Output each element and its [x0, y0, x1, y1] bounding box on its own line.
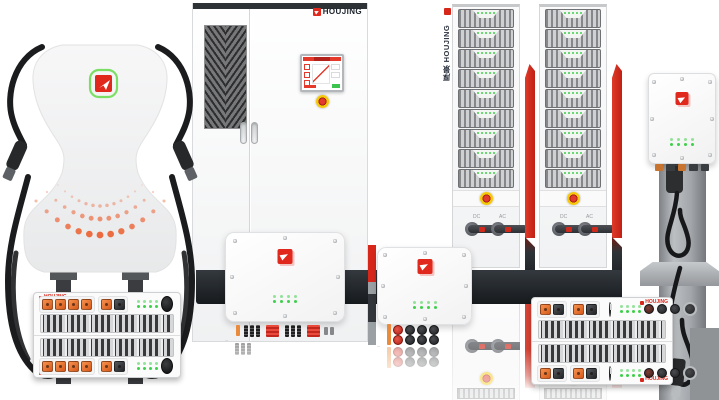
brand-logo-icon	[444, 8, 451, 15]
ledcol-item	[137, 362, 140, 371]
module-led	[477, 112, 479, 114]
screw	[383, 253, 387, 257]
bar-item	[297, 325, 301, 337]
rectifier-module	[458, 89, 514, 108]
connector-row	[39, 295, 175, 313]
module-led	[477, 52, 479, 54]
module-led	[481, 72, 483, 74]
ledcol-item	[620, 305, 623, 314]
module-led	[493, 172, 495, 174]
ledcol-item	[155, 362, 158, 371]
stripe-dark-segment	[525, 237, 535, 271]
red-accent-stripe	[525, 64, 535, 238]
module-led	[568, 172, 570, 174]
screw	[652, 80, 656, 84]
module-led	[485, 152, 487, 154]
module-led	[568, 132, 570, 134]
module-led	[568, 92, 570, 94]
connector-rows	[387, 325, 439, 344]
emergency-stop-button[interactable]	[316, 95, 329, 108]
rectifier-module	[545, 69, 601, 88]
module-notch	[558, 30, 588, 38]
sq-item	[586, 304, 597, 315]
screw	[423, 317, 427, 321]
module-tower-2: DC AC	[539, 4, 607, 268]
screw	[230, 275, 234, 279]
tower-module-stack	[458, 9, 514, 189]
rectifier-module	[545, 89, 601, 108]
screw	[680, 77, 684, 81]
estop-panel	[540, 190, 606, 207]
module-led	[580, 92, 582, 94]
power-module-pair-right: HOUJING HOUJING	[531, 297, 673, 385]
rconn-item	[644, 304, 654, 314]
rectifier-module	[545, 49, 601, 68]
module-led	[580, 12, 582, 14]
module-led	[481, 112, 483, 114]
module-led	[580, 32, 582, 34]
module-led	[572, 52, 574, 54]
module-led	[572, 172, 574, 174]
power-module-pair-left: HOUJING HOUJING	[33, 292, 181, 378]
module-led	[568, 72, 570, 74]
sq-item	[553, 368, 564, 379]
rectifier-module	[458, 169, 514, 188]
module-led	[481, 92, 483, 94]
ventilation-slats	[40, 314, 174, 333]
module-notch	[558, 170, 588, 178]
screw	[462, 315, 466, 319]
rectifier-module	[545, 169, 601, 188]
wallbox-small	[377, 247, 472, 346]
ledcol-item	[632, 305, 635, 314]
brand-logo-icon	[278, 249, 293, 264]
brand-logo-text: HOUJING	[323, 7, 362, 16]
module-led	[485, 32, 487, 34]
module-led	[564, 12, 566, 14]
rectifier-module	[545, 129, 601, 148]
module-led	[576, 112, 578, 114]
connector-row	[537, 300, 667, 318]
tower-module-stack	[545, 9, 601, 189]
rectifier-module	[458, 149, 514, 168]
ledcol-item	[691, 138, 694, 147]
module-led	[576, 132, 578, 134]
module-led	[477, 132, 479, 134]
sq-item	[81, 361, 92, 372]
module-notch	[558, 70, 588, 78]
module-led	[489, 32, 491, 34]
module-led	[481, 132, 483, 134]
module-led	[564, 132, 566, 134]
bar-item	[256, 325, 260, 337]
brand-logo-icon	[313, 8, 321, 16]
bar-item	[291, 325, 295, 337]
module-led	[493, 52, 495, 54]
module-led	[572, 92, 574, 94]
screw	[383, 315, 387, 319]
estop-panel	[453, 190, 519, 207]
rconn-item	[429, 325, 439, 335]
ledcol-item	[626, 305, 629, 314]
sq-item	[553, 304, 564, 315]
power-module: HOUJING	[532, 298, 672, 341]
rectifier-module	[545, 149, 601, 168]
module-led	[493, 92, 495, 94]
module-led	[568, 152, 570, 154]
module-led	[489, 92, 491, 94]
rconn-item	[644, 368, 654, 378]
rectifier-module	[545, 29, 601, 48]
module-led	[580, 52, 582, 54]
screw	[464, 284, 468, 288]
module-led	[493, 72, 495, 74]
module-notch	[471, 110, 501, 118]
module-notch	[471, 30, 501, 38]
module-notch	[471, 150, 501, 158]
module-led	[493, 32, 495, 34]
module-led	[576, 92, 578, 94]
module-led	[572, 152, 574, 154]
sq-item	[55, 299, 66, 310]
rotary-knob[interactable]	[609, 302, 611, 317]
module-led	[572, 112, 574, 114]
module-led	[564, 32, 566, 34]
emergency-stop-button[interactable]	[480, 192, 493, 205]
ledcol-item	[677, 138, 680, 147]
module-led	[489, 12, 491, 14]
module-led	[477, 12, 479, 14]
module-led	[485, 72, 487, 74]
module-led	[489, 152, 491, 154]
ledcol-item	[420, 301, 423, 310]
ledcol-item	[294, 295, 297, 304]
charger-bottom-connectors	[655, 164, 709, 171]
switch-handle	[494, 225, 528, 233]
module-led	[477, 152, 479, 154]
brand-logo-icon	[417, 259, 432, 274]
module-led	[493, 112, 495, 114]
module-led	[568, 52, 570, 54]
screw	[333, 311, 337, 315]
module-led	[576, 152, 578, 154]
module-led	[580, 132, 582, 134]
module-led	[481, 172, 483, 174]
module-led	[489, 112, 491, 114]
stripe-dark-segment	[612, 237, 622, 271]
switch-label: DC	[560, 215, 567, 220]
module-led	[485, 132, 487, 134]
module-notch	[471, 10, 501, 18]
module-led	[489, 72, 491, 74]
brand-logo-icon	[676, 92, 689, 105]
sq-item	[55, 361, 66, 372]
sq-item	[81, 299, 92, 310]
fins-reflection	[457, 388, 515, 399]
module-led	[572, 32, 574, 34]
ledcol-item	[155, 300, 158, 309]
module-led	[580, 72, 582, 74]
rectifier-module	[458, 129, 514, 148]
door-handle-right[interactable]	[251, 122, 258, 144]
screw	[336, 275, 340, 279]
ledcol-item	[638, 305, 641, 314]
rconn-item	[417, 325, 427, 335]
module-led	[580, 112, 582, 114]
switch-handle	[581, 225, 615, 233]
module-tower-1: DC AC	[452, 4, 520, 268]
ventilation-slats	[538, 344, 666, 363]
red-accent-stripe	[612, 64, 622, 238]
module-notch	[558, 130, 588, 138]
rconn-item	[417, 335, 427, 345]
module-led	[489, 172, 491, 174]
rconn-item	[657, 304, 667, 314]
module-led	[485, 92, 487, 94]
module-led	[485, 172, 487, 174]
module-led	[485, 112, 487, 114]
module-led	[568, 12, 570, 14]
module-led	[564, 172, 566, 174]
estop-reflection	[480, 372, 493, 385]
screw	[650, 117, 654, 121]
screw	[680, 156, 684, 160]
module-notch	[558, 10, 588, 18]
module-led	[576, 72, 578, 74]
sq-item	[573, 304, 584, 315]
module-led	[485, 52, 487, 54]
module-led	[580, 152, 582, 154]
power-module: HOUJING	[532, 341, 672, 384]
module-notch	[558, 90, 588, 98]
ledcol-item	[626, 369, 629, 378]
screw	[233, 239, 237, 243]
sq-item	[42, 361, 53, 372]
ledcol-item	[427, 301, 430, 310]
module-led	[481, 52, 483, 54]
connector-row	[39, 357, 175, 375]
module-led	[493, 152, 495, 154]
module-led	[564, 52, 566, 54]
ledcol-item	[137, 300, 140, 309]
screw	[233, 311, 237, 315]
module-notch	[558, 110, 588, 118]
rconn-item	[405, 325, 415, 335]
wallbox-faceplate	[225, 232, 345, 322]
rectifier-module	[545, 109, 601, 128]
screw	[708, 80, 712, 84]
charging-gun-left[interactable]	[0, 139, 29, 182]
switch-label: AC	[586, 215, 593, 220]
wall-charger-box	[648, 73, 716, 164]
sq-item	[540, 304, 551, 315]
module-led	[576, 172, 578, 174]
rotary-knob[interactable]	[609, 366, 611, 381]
bar-item	[250, 325, 254, 337]
module-led	[481, 32, 483, 34]
sq-item	[114, 361, 125, 372]
module-notch	[471, 90, 501, 98]
screw	[462, 253, 466, 257]
fins-reflection	[544, 388, 602, 399]
module-led	[576, 52, 578, 54]
module-led	[576, 32, 578, 34]
screw	[381, 284, 385, 288]
module-led	[477, 92, 479, 94]
bar-item	[244, 325, 248, 337]
sq-item	[586, 368, 597, 379]
rectifier-module	[458, 109, 514, 128]
sq-item	[101, 299, 112, 310]
module-led	[580, 172, 582, 174]
power-module: HOUJING	[34, 293, 180, 335]
bar-item	[285, 325, 289, 337]
ledcol-item	[143, 362, 146, 371]
status-led-grid	[670, 138, 694, 147]
module-notch	[471, 50, 501, 58]
ventilation-grille	[204, 25, 247, 129]
module-led	[564, 152, 566, 154]
module-led	[493, 12, 495, 14]
module-led	[564, 92, 566, 94]
module-led	[564, 112, 566, 114]
rconn-item	[393, 325, 403, 335]
sq-item	[540, 368, 551, 379]
brand-logo: HOUJING	[313, 7, 362, 16]
round-connector	[161, 296, 173, 312]
status-led-grid	[413, 301, 437, 310]
module-notch	[471, 70, 501, 78]
screw	[652, 153, 656, 157]
rconn-item	[657, 368, 667, 378]
ledcol-item	[143, 300, 146, 309]
module-led	[489, 52, 491, 54]
pedestal-shadow	[690, 328, 719, 400]
sq-item	[68, 361, 79, 372]
ledcol-item	[280, 295, 283, 304]
module-notch	[471, 130, 501, 138]
module-led	[568, 32, 570, 34]
power-module: HOUJING	[34, 335, 180, 377]
module-led	[477, 172, 479, 174]
screw	[423, 251, 427, 255]
rconn-item	[670, 368, 680, 378]
ventilation-slats	[40, 338, 174, 357]
wallbox-faceplate	[377, 247, 472, 325]
ledcol-item	[149, 362, 152, 371]
module-led	[564, 72, 566, 74]
touchscreen-display[interactable]	[300, 54, 344, 92]
module-led	[477, 72, 479, 74]
screw	[710, 117, 714, 121]
module-led	[485, 12, 487, 14]
module-led	[572, 132, 574, 134]
rconn-item	[429, 335, 439, 345]
module-led	[489, 132, 491, 134]
sq-item	[114, 299, 125, 310]
wallbox-inverter	[225, 232, 345, 340]
sq-item	[42, 299, 53, 310]
rectifier-module	[458, 9, 514, 28]
rconn-item	[683, 302, 697, 316]
module-notch	[558, 50, 588, 58]
screw	[283, 236, 287, 240]
background-red-stripe	[368, 245, 376, 345]
ledcol-item	[620, 369, 623, 378]
status-led-grid	[273, 295, 297, 304]
ventilation-slats	[538, 320, 666, 339]
rectifier-module	[458, 29, 514, 48]
module-led	[568, 112, 570, 114]
module-led	[576, 12, 578, 14]
connector-row	[537, 364, 667, 382]
round-connector	[161, 358, 173, 374]
rconn-item	[393, 335, 403, 345]
ledcol-item	[287, 295, 290, 304]
terminal-row	[233, 323, 337, 338]
module-led	[481, 12, 483, 14]
module-led	[477, 32, 479, 34]
module-led	[572, 72, 574, 74]
screw	[333, 239, 337, 243]
terminal-block-red	[266, 325, 279, 337]
ledcol-item	[413, 301, 416, 310]
ledcol-item	[434, 301, 437, 310]
screw	[708, 153, 712, 157]
rconn-item	[683, 366, 697, 380]
sq-item	[68, 299, 79, 310]
module-led	[572, 12, 574, 14]
sq-item	[573, 368, 584, 379]
ledcol-item	[638, 369, 641, 378]
rectifier-module	[458, 69, 514, 88]
module-notch	[471, 170, 501, 178]
ledcol-item	[273, 295, 276, 304]
screw	[283, 314, 287, 318]
module-notch	[558, 150, 588, 158]
switch-label: AC	[499, 215, 506, 220]
ledcol-item	[670, 138, 673, 147]
sq-item	[101, 361, 112, 372]
charging-gun-right[interactable]	[171, 139, 200, 182]
module-led	[481, 152, 483, 154]
rconn-item	[405, 335, 415, 345]
module-led	[493, 132, 495, 134]
ledcol-item	[149, 300, 152, 309]
ledcol-item	[684, 138, 687, 147]
rconn-item	[670, 304, 680, 314]
rectifier-module	[458, 49, 514, 68]
emergency-stop-button[interactable]	[567, 192, 580, 205]
door-handle-left[interactable]	[240, 122, 247, 144]
switch-label: DC	[473, 215, 480, 220]
product-collage: 厚景 HOUJING DC AC DC	[0, 0, 719, 400]
ledcol-item	[632, 369, 635, 378]
rectifier-module	[545, 9, 601, 28]
terminal-block-red	[307, 325, 320, 337]
